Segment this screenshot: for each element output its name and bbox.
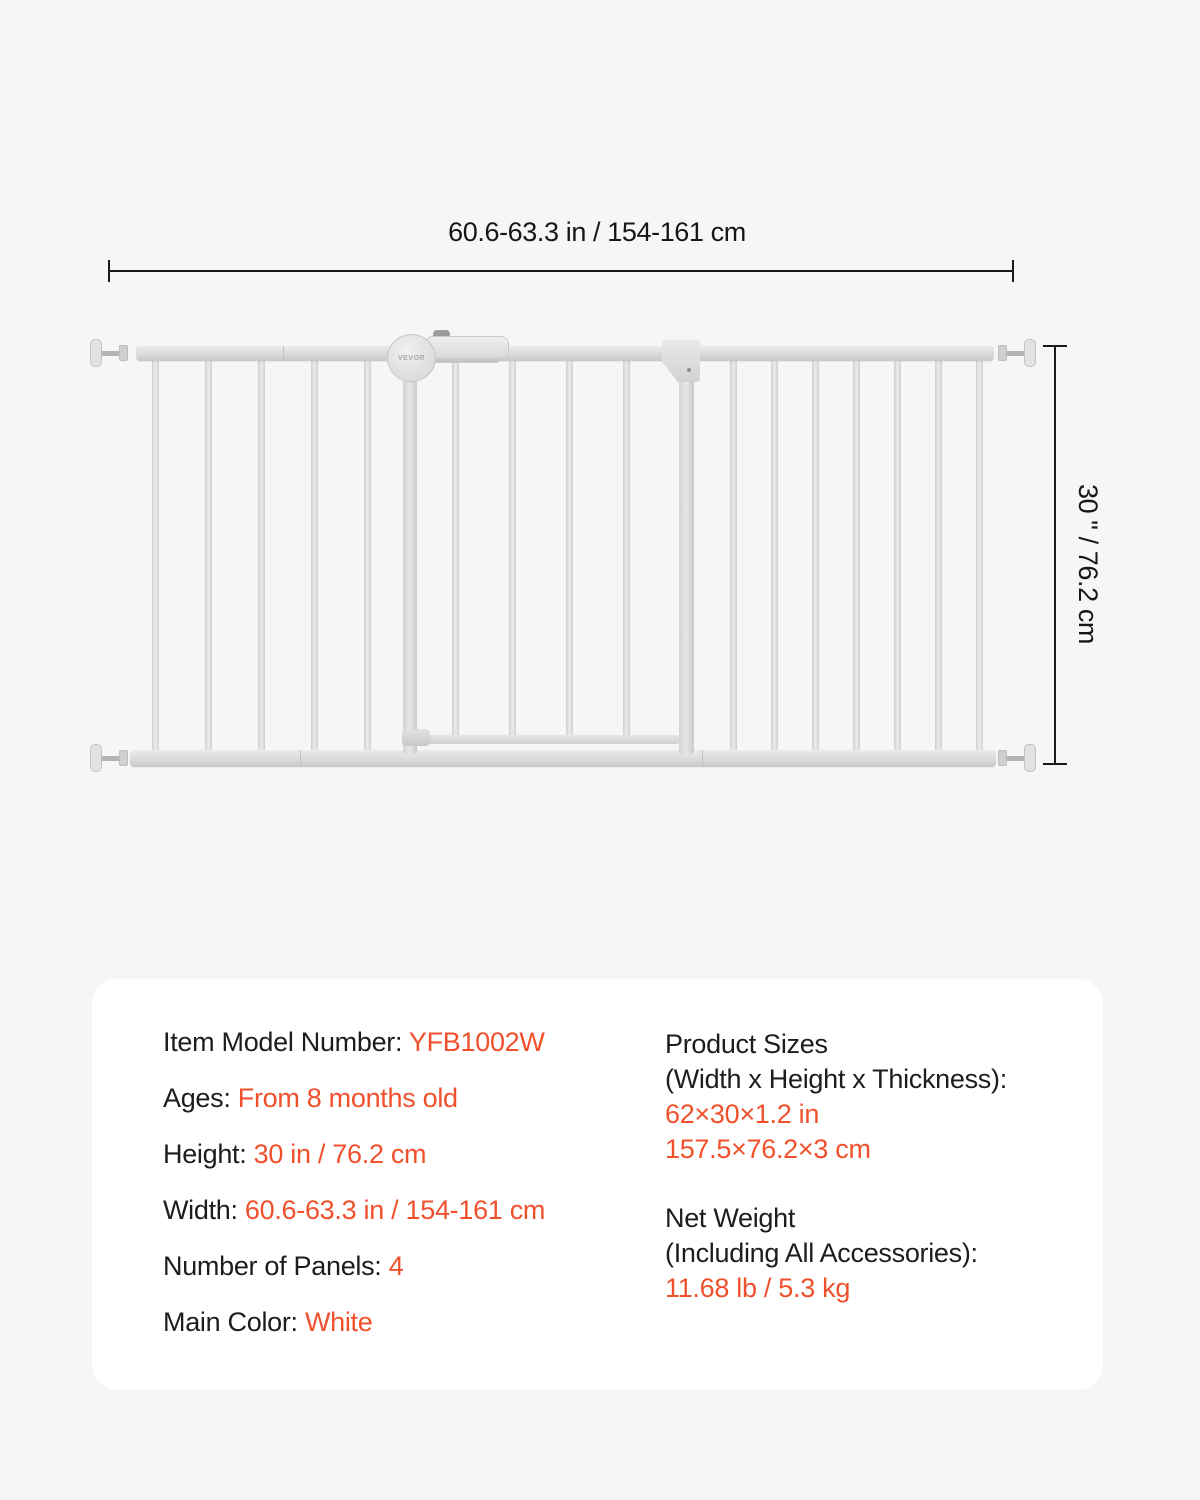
hinge-bracket bbox=[662, 340, 700, 382]
knob-rod bbox=[1007, 756, 1024, 761]
height-dimension-label: 30 " / 76.2 cm bbox=[1071, 354, 1103, 774]
gate-bar bbox=[205, 356, 212, 754]
gate-door-bar bbox=[566, 356, 573, 738]
latch-disc: VEVOR bbox=[387, 334, 436, 382]
spec-line: Product Sizes bbox=[665, 1027, 1065, 1062]
door-bottom-bar bbox=[410, 735, 680, 744]
width-dimension-label: 60.6-63.3 in / 154-161 cm bbox=[297, 217, 897, 248]
knob-nut bbox=[119, 345, 128, 361]
door-frame-hinge-post bbox=[679, 350, 694, 754]
gate-bar bbox=[311, 356, 318, 754]
gate-bar bbox=[935, 356, 942, 754]
rail-joint-seam bbox=[300, 750, 301, 767]
wall-pad bbox=[90, 339, 102, 367]
pressure-mount-knob bbox=[990, 339, 1036, 367]
spec-line: Net Weight bbox=[665, 1201, 1065, 1236]
spec-card: Item Model Number: YFB1002WAges: From 8 … bbox=[92, 979, 1103, 1390]
product-spec-page: 60.6-63.3 in / 154-161 cm 30 " / 76.2 cm… bbox=[0, 0, 1200, 1500]
spec-right-column: Product Sizes(Width x Height x Thickness… bbox=[665, 1027, 1065, 1340]
latch-handle bbox=[427, 336, 509, 363]
wall-pad bbox=[90, 744, 102, 772]
wall-pad bbox=[1024, 339, 1036, 367]
spec-value: From 8 months old bbox=[238, 1083, 458, 1113]
spec-value: 30 in / 76.2 cm bbox=[254, 1139, 427, 1169]
spec-value: White bbox=[305, 1307, 373, 1337]
spec-row: Height: 30 in / 76.2 cm bbox=[163, 1137, 545, 1171]
spec-line: (Including All Accessories): bbox=[665, 1236, 1065, 1271]
gate-bar bbox=[258, 356, 265, 754]
knob-rod bbox=[1007, 351, 1024, 356]
spec-block: Net Weight(Including All Accessories):11… bbox=[665, 1201, 1065, 1306]
spec-row: Main Color: White bbox=[163, 1305, 545, 1339]
spec-block: Product Sizes(Width x Height x Thickness… bbox=[665, 1027, 1065, 1167]
knob-rod bbox=[102, 756, 119, 761]
spec-row: Item Model Number: YFB1002W bbox=[163, 1025, 545, 1059]
gate-bar bbox=[364, 356, 371, 754]
width-dimension-line bbox=[108, 270, 1014, 272]
spec-line: (Width x Height x Thickness): bbox=[665, 1062, 1065, 1097]
spec-value: YFB1002W bbox=[409, 1027, 545, 1057]
spec-line: 62×30×1.2 in bbox=[665, 1097, 1065, 1132]
spec-label: Item Model Number: bbox=[163, 1027, 409, 1057]
wall-pad bbox=[1024, 744, 1036, 772]
pressure-mount-knob bbox=[90, 339, 136, 367]
gate-door-bar bbox=[623, 356, 630, 738]
gate-bar bbox=[853, 356, 860, 754]
brand-logo: VEVOR bbox=[398, 355, 425, 362]
baby-gate-illustration: VEVOR bbox=[90, 330, 1040, 780]
spec-row: Width: 60.6-63.3 in / 154-161 cm bbox=[163, 1193, 545, 1227]
spec-row: Number of Panels: 4 bbox=[163, 1249, 545, 1283]
gate-bar bbox=[812, 356, 819, 754]
gate-bar bbox=[771, 356, 778, 754]
gate-bar bbox=[894, 356, 901, 754]
door-latch-foot bbox=[402, 729, 430, 746]
rail-joint-seam bbox=[702, 750, 703, 767]
height-dimension-line bbox=[1054, 345, 1056, 765]
spec-value: 60.6-63.3 in / 154-161 cm bbox=[245, 1195, 545, 1225]
spec-line: 11.68 lb / 5.3 kg bbox=[665, 1271, 1065, 1306]
spec-value: 4 bbox=[389, 1251, 404, 1281]
spec-label: Ages: bbox=[163, 1083, 238, 1113]
gate-door-bar bbox=[452, 356, 459, 738]
door-frame-latch-post bbox=[403, 350, 417, 754]
gate-bar bbox=[976, 356, 983, 754]
knob-rod bbox=[102, 351, 119, 356]
pressure-mount-knob bbox=[990, 744, 1036, 772]
spec-line: 157.5×76.2×3 cm bbox=[665, 1132, 1065, 1167]
spec-label: Main Color: bbox=[163, 1307, 305, 1337]
pressure-mount-knob bbox=[90, 744, 136, 772]
gate-bar bbox=[730, 356, 737, 754]
gate-bar bbox=[152, 356, 159, 754]
hinge-screw bbox=[687, 368, 691, 372]
spec-left-column: Item Model Number: YFB1002WAges: From 8 … bbox=[163, 1025, 545, 1361]
spec-label: Width: bbox=[163, 1195, 245, 1225]
rail-joint-seam bbox=[283, 346, 284, 361]
spec-label: Number of Panels: bbox=[163, 1251, 389, 1281]
gate-door-bar bbox=[509, 356, 516, 738]
spec-row: Ages: From 8 months old bbox=[163, 1081, 545, 1115]
spec-label: Height: bbox=[163, 1139, 254, 1169]
gate-bottom-rail bbox=[130, 750, 996, 767]
gate-top-rail bbox=[136, 346, 994, 361]
knob-nut bbox=[119, 750, 128, 766]
knob-nut bbox=[998, 750, 1007, 766]
knob-nut bbox=[998, 345, 1007, 361]
